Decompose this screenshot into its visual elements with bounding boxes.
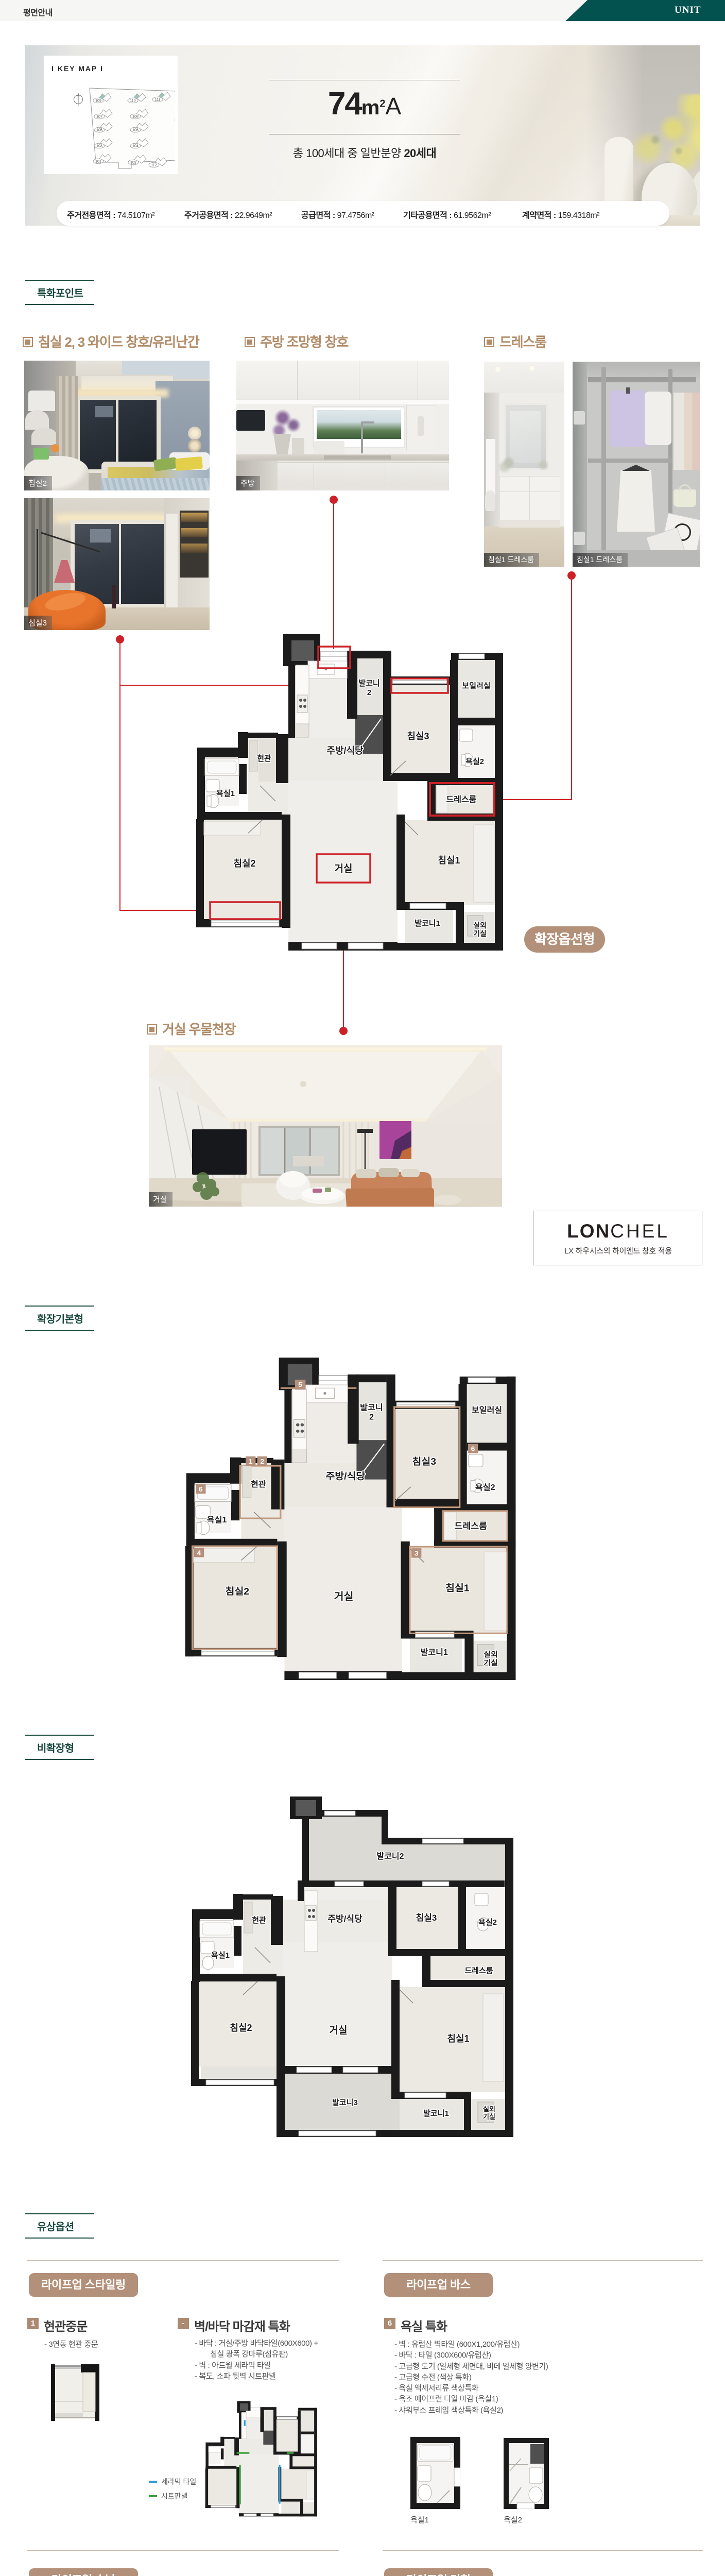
svg-text:2: 2: [260, 1458, 264, 1465]
svg-text:107: 107: [96, 115, 102, 119]
svg-text:침실2: 침실2: [230, 2023, 252, 2033]
svg-text:침실1: 침실1: [438, 855, 460, 866]
svg-text:5: 5: [298, 1381, 302, 1389]
svg-text:실외: 실외: [484, 1650, 498, 1659]
svg-text:드레스룸: 드레스룸: [455, 1521, 487, 1531]
svg-text:침실3: 침실3: [407, 731, 429, 741]
svg-text:기실: 기실: [483, 2113, 495, 2121]
svg-text:111: 111: [155, 98, 161, 102]
svg-text:발코니3: 발코니3: [332, 2098, 358, 2107]
svg-text:현관: 현관: [252, 1916, 266, 1925]
svg-text:발코니2: 발코니2: [376, 1852, 404, 1861]
svg-text:침실3: 침실3: [416, 1912, 437, 1923]
svg-text:2: 2: [367, 688, 371, 697]
svg-text:침실3: 침실3: [412, 1456, 436, 1467]
svg-text:103: 103: [96, 145, 102, 148]
svg-text:침실1: 침실1: [445, 1583, 469, 1593]
svg-text:102: 102: [130, 161, 136, 165]
svg-text:침실2: 침실2: [233, 858, 255, 869]
svg-text:욕실2: 욕실2: [465, 757, 484, 766]
svg-text:110: 110: [130, 99, 135, 103]
svg-text:109: 109: [95, 99, 101, 103]
svg-text:4: 4: [197, 1549, 201, 1557]
svg-text:욕실1: 욕실1: [207, 1516, 227, 1524]
svg-text:108: 108: [132, 115, 139, 119]
svg-text:105: 105: [96, 129, 102, 132]
svg-text:드레스룸: 드레스룸: [464, 1967, 493, 1975]
svg-text:3: 3: [415, 1550, 419, 1557]
svg-text:106: 106: [132, 129, 139, 132]
svg-text:보일러실: 보일러실: [462, 682, 490, 690]
svg-text:발코니1: 발코니1: [423, 2109, 449, 2118]
svg-text:기실: 기실: [484, 1659, 498, 1668]
svg-text:보일러실: 보일러실: [472, 1406, 502, 1415]
svg-text:발코니1: 발코니1: [420, 1648, 448, 1656]
svg-text:1: 1: [249, 1458, 253, 1465]
svg-text:2: 2: [369, 1413, 374, 1422]
svg-text:욕실2: 욕실2: [475, 1483, 495, 1492]
svg-text:주방/식당: 주방/식당: [327, 1914, 362, 1924]
svg-text:발코니: 발코니: [358, 679, 379, 688]
svg-text:거실: 거실: [335, 863, 353, 874]
svg-text:실외: 실외: [483, 2105, 495, 2113]
svg-text:드레스룸: 드레스룸: [446, 795, 477, 804]
svg-text:침실2: 침실2: [226, 1586, 249, 1596]
svg-text:침실1: 침실1: [447, 2033, 469, 2044]
svg-text:거실: 거실: [334, 1591, 354, 1602]
svg-text:기실: 기실: [473, 929, 487, 938]
svg-text:104: 104: [132, 145, 139, 148]
svg-text:6: 6: [471, 1445, 475, 1453]
svg-text:발코니: 발코니: [360, 1403, 383, 1412]
svg-text:112: 112: [151, 164, 157, 167]
svg-text:101: 101: [95, 160, 101, 164]
svg-text:거실: 거실: [330, 2025, 348, 2036]
svg-text:6: 6: [199, 1485, 203, 1493]
svg-text:실외: 실외: [473, 921, 487, 929]
svg-text:주방/식당: 주방/식당: [326, 1471, 366, 1481]
svg-text:주방/식당: 주방/식당: [326, 745, 364, 756]
svg-text:발코니1: 발코니1: [415, 919, 440, 928]
svg-text:현관: 현관: [257, 754, 271, 763]
svg-text:현관: 현관: [251, 1479, 266, 1488]
svg-text:욕실1: 욕실1: [211, 1951, 230, 1960]
svg-text:욕실2: 욕실2: [478, 1918, 497, 1927]
svg-text:욕실1: 욕실1: [216, 789, 235, 798]
